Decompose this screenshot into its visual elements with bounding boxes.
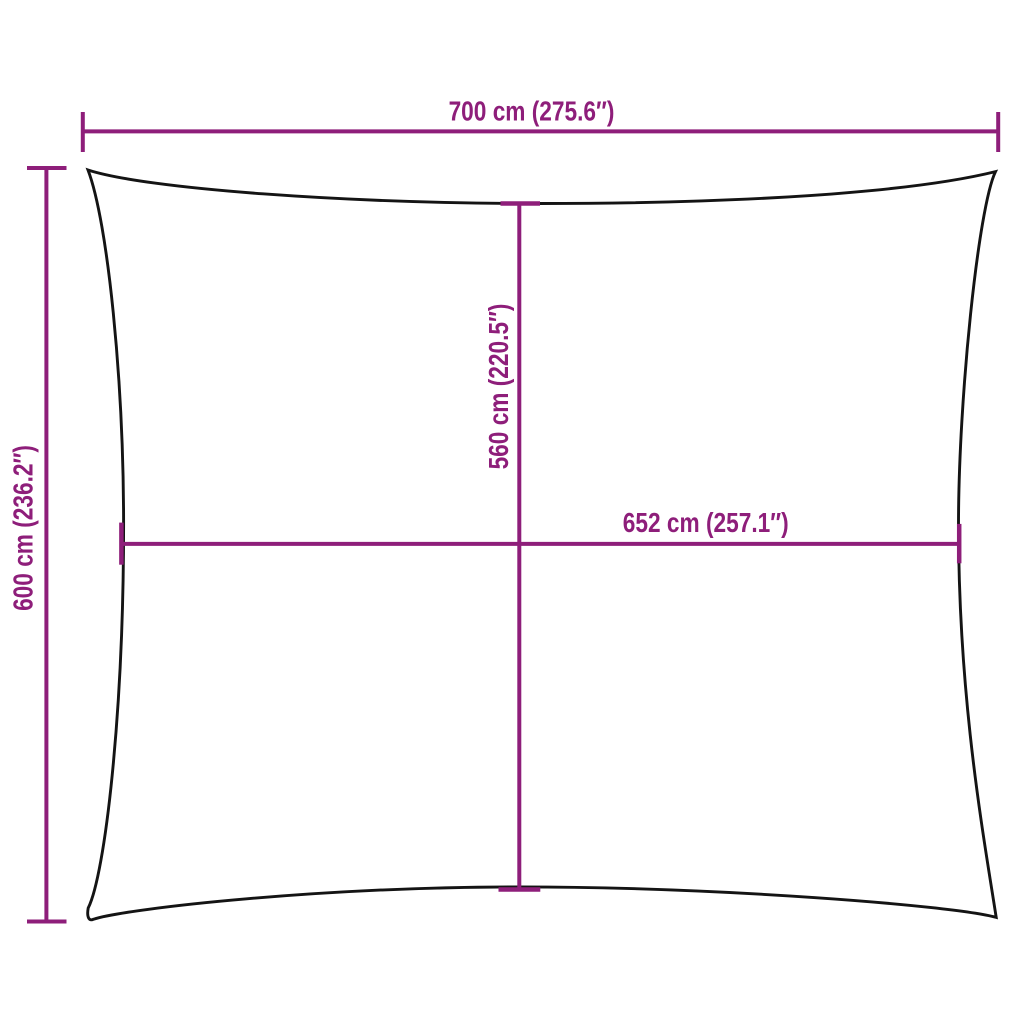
svg-text:652 cm (257.1″): 652 cm (257.1″): [623, 508, 789, 539]
svg-text:700 cm (275.6″): 700 cm (275.6″): [449, 96, 615, 127]
svg-text:600 cm (236.2″): 600 cm (236.2″): [8, 445, 39, 611]
svg-text:560 cm (220.5″): 560 cm (220.5″): [484, 304, 515, 470]
